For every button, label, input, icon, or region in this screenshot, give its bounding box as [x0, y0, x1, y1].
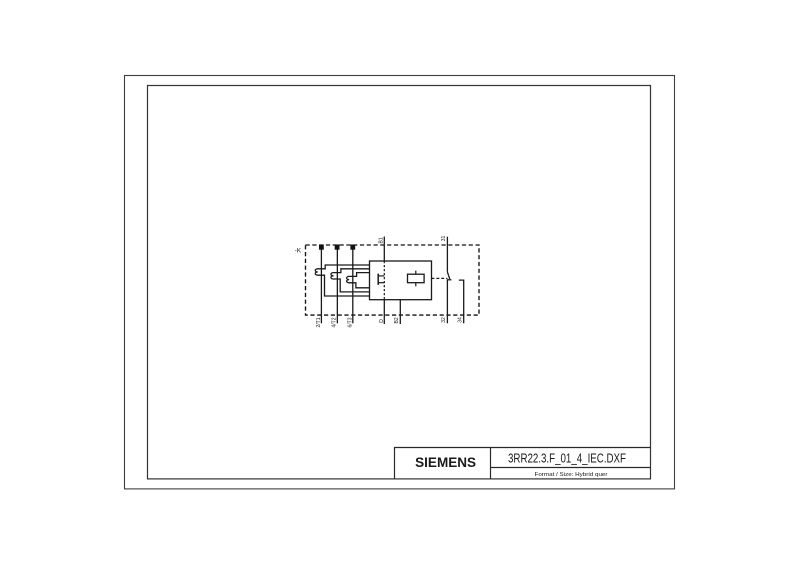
svg-text:34: 34 — [458, 317, 464, 323]
svg-text:B2: B2 — [394, 317, 400, 323]
svg-text:32: 32 — [441, 317, 447, 323]
svg-text:4/T2: 4/T2 — [332, 317, 338, 327]
svg-text:6/T3: 6/T3 — [347, 317, 353, 327]
svg-text:3RR22.3.F_01_4_IEC.DXF: 3RR22.3.F_01_4_IEC.DXF — [508, 451, 626, 466]
svg-text:Format / Size: Hybrid quer: Format / Size: Hybrid quer — [535, 472, 608, 478]
svg-text:SIEMENS: SIEMENS — [415, 454, 476, 470]
svg-text:2/T1: 2/T1 — [316, 317, 322, 327]
svg-text:B1: B1 — [379, 237, 385, 243]
svg-text:D: D — [379, 319, 385, 323]
svg-text:31: 31 — [441, 236, 447, 242]
svg-text:-K: -K — [295, 248, 302, 255]
